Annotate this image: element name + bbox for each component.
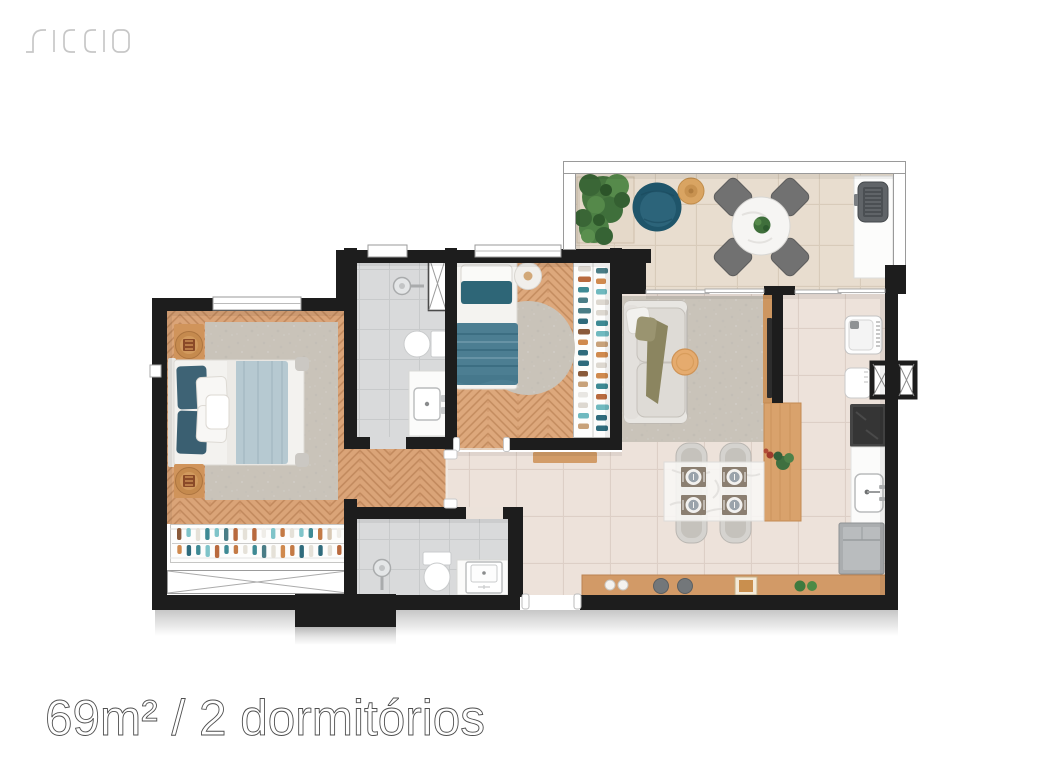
svg-text:69m² / 2 dormitórios: 69m² / 2 dormitórios	[45, 690, 485, 746]
